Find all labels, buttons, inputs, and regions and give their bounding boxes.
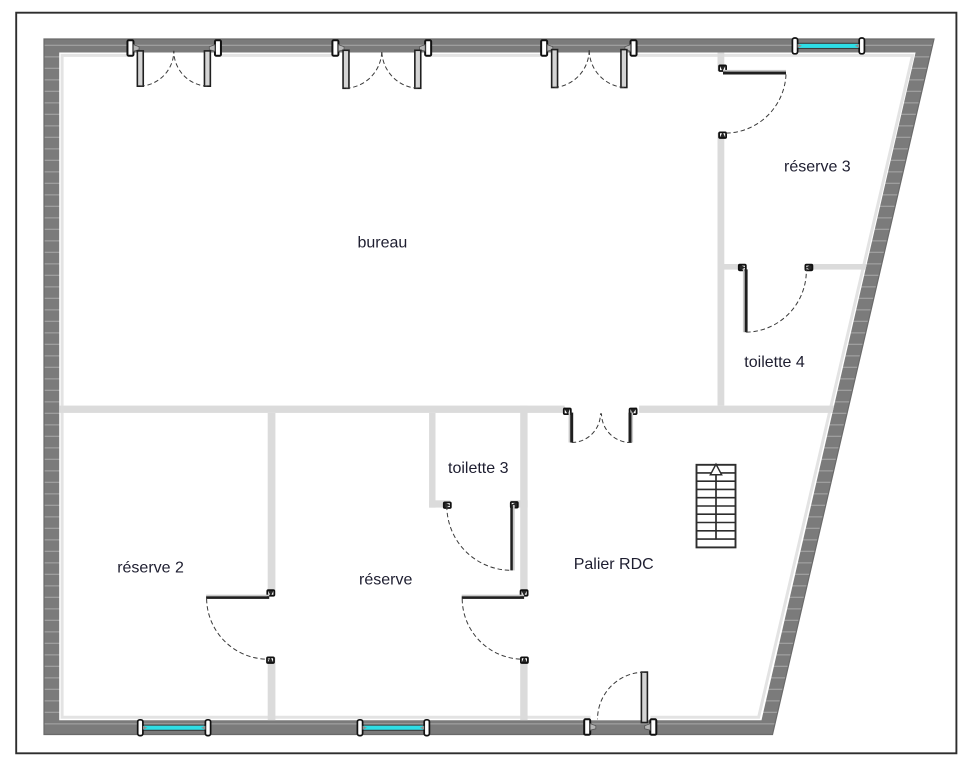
svg-text:bureau: bureau [358,235,408,252]
svg-text:toilette 4: toilette 4 [744,354,805,371]
svg-text:toilette 3: toilette 3 [448,460,509,477]
svg-text:Palier RDC: Palier RDC [574,556,654,573]
svg-text:réserve: réserve [359,572,412,589]
svg-text:réserve 3: réserve 3 [784,159,851,176]
svg-text:réserve 2: réserve 2 [117,560,184,577]
